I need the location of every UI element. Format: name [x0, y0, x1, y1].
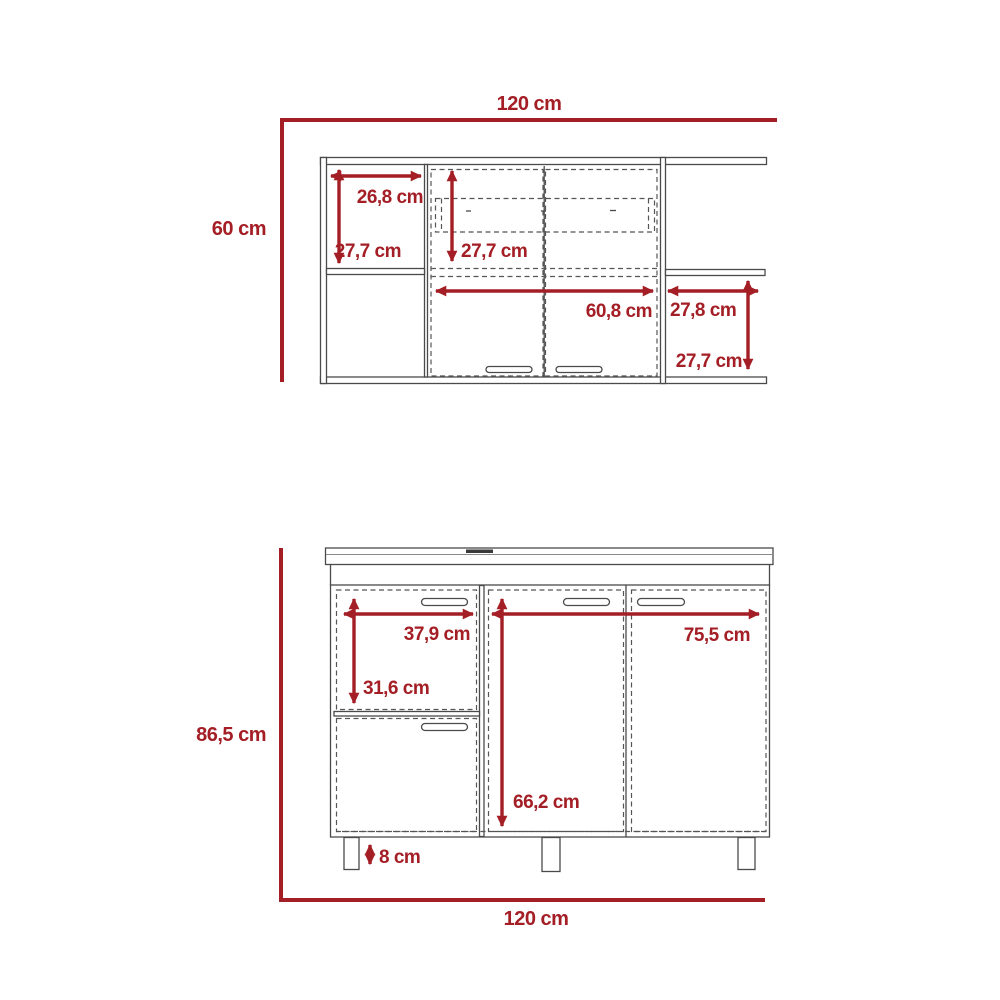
upper-cabinet-drawing: 120 cm 60 cm 26,8 cm 2 — [212, 93, 777, 384]
upper-left-shelf-width-label: 26,8 cm — [357, 187, 423, 208]
lower-right-door-handle — [638, 599, 685, 606]
middle-leg — [542, 838, 560, 872]
upper-left-shelf-height-label: 27,7 cm — [335, 241, 401, 262]
upper-right-shelf-width-label: 27,8 cm — [670, 300, 736, 321]
countertop — [326, 548, 774, 565]
upper-right-divider-panel — [661, 158, 666, 384]
drawer-door-separator — [334, 712, 480, 717]
countertop-seam-mark — [466, 550, 493, 554]
drawer-width-label: 37,9 cm — [404, 624, 470, 645]
diagram-svg: 120 cm 60 cm 26,8 cm 2 — [0, 0, 1000, 1000]
left-leg — [344, 838, 359, 870]
drawer-section-height-label: 31,6 cm — [363, 678, 429, 699]
upper-right-shelf-height-label: 27,7 cm — [676, 351, 742, 372]
furniture-dimension-diagram: 120 cm 60 cm 26,8 cm 2 — [0, 0, 1000, 1000]
upper-right-door-outline — [546, 170, 658, 377]
upper-center-width-label: 60,8 cm — [586, 301, 652, 322]
upper-right-door-handle — [556, 367, 602, 373]
lower-left-door-outline — [337, 719, 477, 832]
right-leg — [738, 838, 755, 870]
lower-height-label: 86,5 cm — [196, 724, 266, 746]
upper-left-door-outline — [431, 170, 543, 377]
upper-center-height-label: 27,7 cm — [461, 241, 527, 262]
lower-left-door-handle — [422, 724, 468, 731]
upper-left-door-handle — [486, 367, 532, 373]
upper-left-panel — [321, 158, 327, 384]
doors-width-label: 75,5 cm — [684, 625, 750, 646]
upper-width-label: 120 cm — [497, 93, 562, 115]
door-height-label: 66,2 cm — [513, 792, 579, 813]
lower-middle-door-handle — [564, 599, 610, 606]
leg-height-label: 8 cm — [379, 847, 420, 868]
drawer-handle — [422, 599, 468, 606]
lower-width-label: 120 cm — [504, 908, 569, 930]
upper-top-board — [321, 158, 767, 165]
upper-left-shelf — [327, 269, 425, 275]
upper-bottom-board — [321, 377, 767, 384]
upper-height-label: 60 cm — [212, 218, 266, 240]
lower-cabinet-drawing: 86,5 cm 120 cm 37,9 — [196, 548, 773, 930]
upper-right-shelf — [666, 270, 766, 276]
lower-left-divider-panel — [480, 586, 485, 837]
